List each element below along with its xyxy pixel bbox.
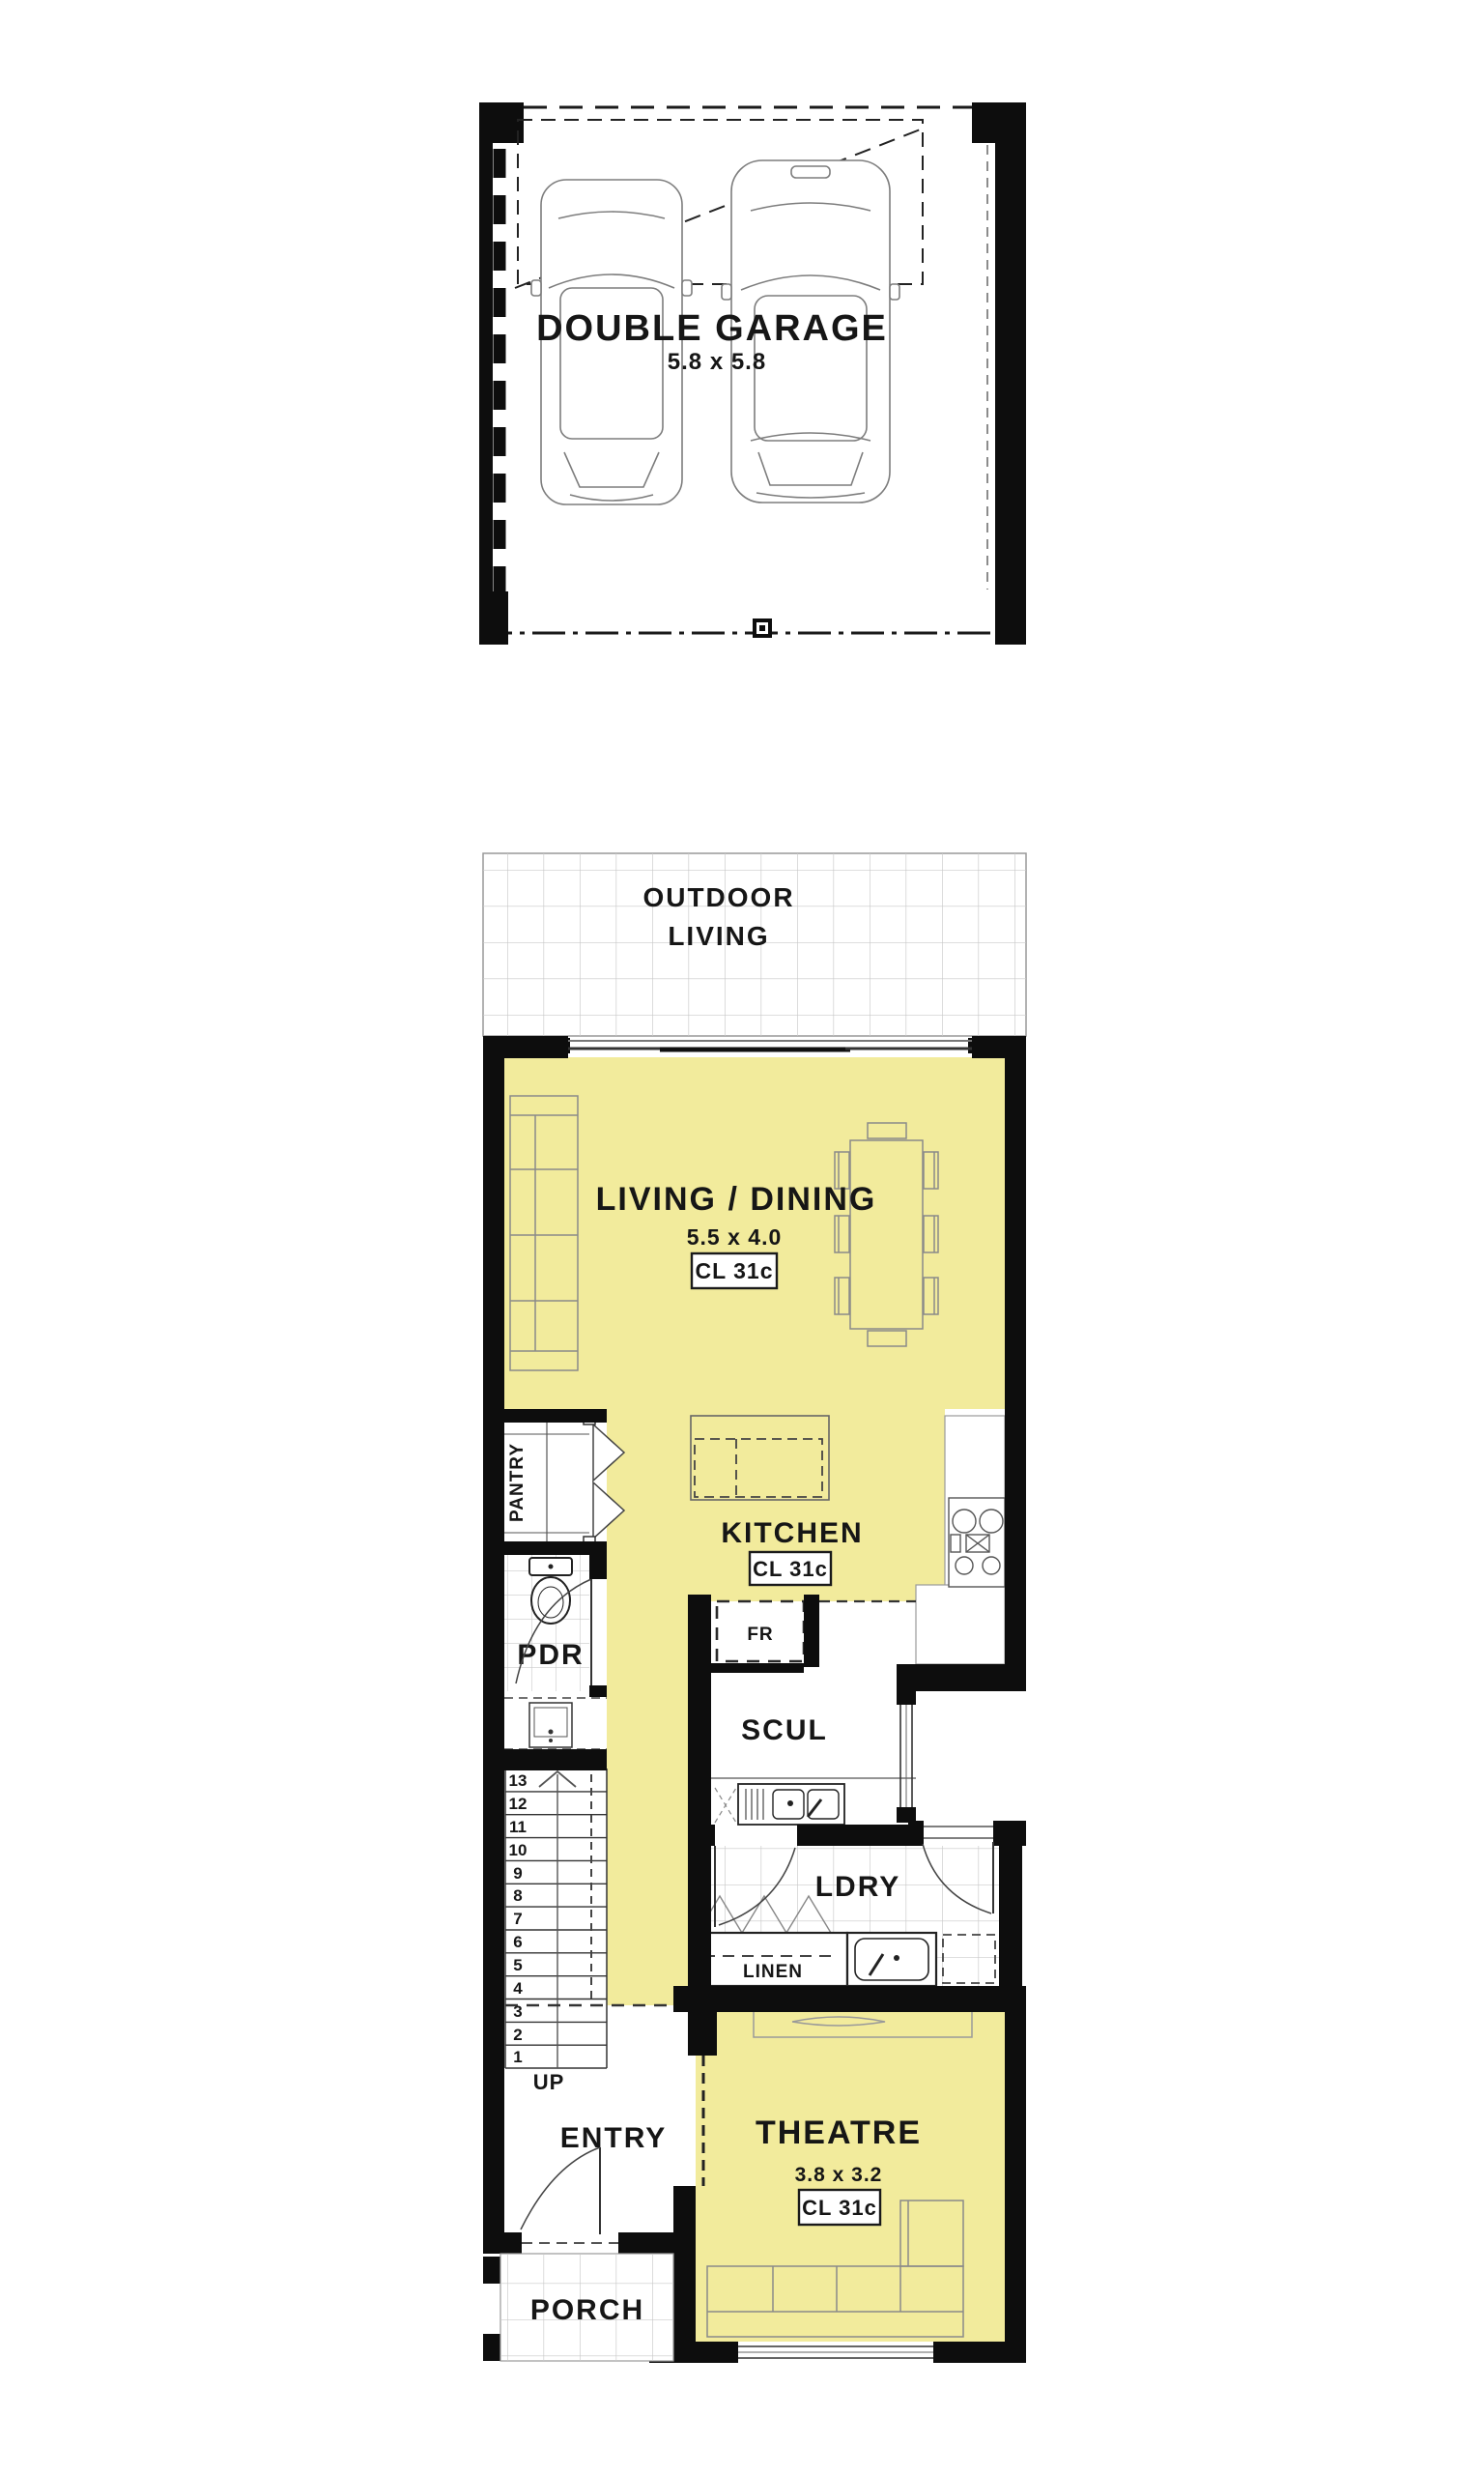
svg-text:13: 13: [509, 1771, 528, 1790]
svg-text:9: 9: [513, 1864, 522, 1883]
living-dining-label: LIVING / DINING: [596, 1181, 877, 1218]
garage-label: DOUBLE GARAGE: [536, 308, 888, 349]
svg-text:11: 11: [509, 1818, 527, 1836]
pantry-label: PANTRY: [507, 1443, 528, 1522]
stacker-door-icon: [564, 1038, 974, 1053]
linen-label: LINEN: [743, 1962, 803, 1982]
garage-left-wall: [479, 102, 493, 645]
left-exterior-wall: [483, 1036, 504, 2254]
outdoor-living-label-2: LIVING: [668, 921, 769, 951]
scul-sink-icon: [738, 1784, 844, 1825]
svg-text:5: 5: [513, 1956, 522, 1974]
garage-room: DOUBLE GARAGE 5.8 x 5.8: [479, 102, 1026, 645]
outdoor-living-room: OUTDOOR LIVING: [483, 853, 1026, 1036]
entry-door-arc: [521, 2147, 600, 2229]
powder-room: PDR: [504, 1555, 591, 1691]
pdr-top-wall: [483, 1541, 607, 1555]
scul-window-stub-top: [897, 1691, 916, 1705]
car-mirror-icon: [531, 280, 541, 296]
theatre-dims: 3.8 x 3.2: [795, 2164, 883, 2186]
pdr-right-wall-stub: [589, 1541, 607, 1579]
living-dining-dims: 5.5 x 4.0: [687, 1224, 783, 1250]
garage-dims: 5.8 x 5.8: [668, 349, 766, 375]
hall-right-wall: [688, 1595, 711, 1991]
porch-left-pier-bottom: [483, 2334, 500, 2361]
theatre-left-wall: [673, 2186, 696, 2363]
svg-text:2: 2: [513, 2026, 522, 2044]
meter-box-icon: [753, 618, 772, 638]
car-mirror-icon: [722, 284, 731, 300]
dishwasher-space: [715, 1788, 736, 1823]
svg-text:10: 10: [509, 1841, 528, 1859]
nook-bottom-wall: [483, 1749, 607, 1770]
scullery-room: SCUL: [711, 1714, 916, 1825]
entry-bottom-wall-right: [618, 2232, 673, 2254]
ldry-label: LDRY: [815, 1871, 901, 1903]
svg-text:12: 12: [509, 1795, 528, 1813]
svg-text:8: 8: [513, 1886, 522, 1905]
cooktop-icon: [949, 1498, 1005, 1587]
theatre-left-wall-stub: [688, 1986, 717, 2056]
theatre-bottom-wall-right: [933, 2342, 1005, 2363]
garage-bottom-right-pier: [995, 591, 1026, 645]
linen-cupboard: LINEN: [696, 1933, 847, 1986]
scul-label: SCUL: [741, 1714, 828, 1746]
scul-bottom-wall-left: [688, 1825, 715, 1846]
car-mirror-icon: [682, 280, 692, 296]
entry-bottom-wall-left: [483, 2232, 522, 2254]
outdoor-living-label-1: OUTDOOR: [642, 882, 794, 912]
hall-floor: [607, 1601, 688, 2005]
fridge-right-stub-wall: [804, 1595, 819, 1667]
theatre-right-wall: [1005, 1991, 1026, 2363]
garage-top-right-pier: [972, 102, 1026, 143]
svg-text:4: 4: [513, 1979, 523, 1998]
toilet-icon: [529, 1558, 572, 1624]
svg-text:6: 6: [513, 1933, 522, 1951]
porch-label: PORCH: [530, 2294, 644, 2326]
garage-bottom-left-pier: [479, 591, 508, 645]
pantry-room: PANTRY: [504, 1413, 624, 1548]
basin-icon: [529, 1703, 572, 1747]
ldry-topright-wall-right: [993, 1821, 1026, 1846]
stairs-up-label: UP: [533, 2070, 565, 2094]
entry-label: ENTRY: [560, 2122, 668, 2154]
floor-plan-page: DOUBLE GARAGE 5.8 x 5.8 OUTDOOR LIVING: [0, 0, 1484, 2474]
scul-window-stub-bottom: [897, 1807, 916, 1823]
car-mirror-icon: [890, 284, 899, 300]
laundry-trough-icon: [847, 1933, 936, 1986]
svg-text:7: 7: [513, 1910, 522, 1928]
kitchen-bench-return: [916, 1585, 1005, 1664]
living-dining-ceiling-label: CL 31c: [695, 1258, 773, 1283]
kitchen-ceiling-label: CL 31c: [753, 1557, 828, 1581]
right-step-wall: [897, 1664, 1026, 1691]
fridge-label: FR: [747, 1625, 773, 1645]
scul-bottom-wall-right: [797, 1825, 916, 1846]
theatre-ceiling-label: CL 31c: [802, 2196, 877, 2220]
svg-text:1: 1: [513, 2048, 522, 2066]
living-top-wall-left: [483, 1036, 568, 1058]
laundry-room: LDRY LINEN: [692, 1846, 999, 1986]
staircase: 13 12 11 10 9 8 7 6 5 4 3 2 1 UP: [505, 1769, 607, 2094]
theatre-window-icon: [738, 2346, 933, 2358]
theatre-top-wall: [673, 1986, 1026, 2012]
fridge-bottom-wall: [711, 1663, 804, 1673]
vanity-nook: [504, 1698, 607, 1749]
porch-left-pier-top: [483, 2257, 500, 2284]
pdr-label: PDR: [517, 1639, 584, 1671]
pantry-top-wall: [483, 1409, 607, 1423]
kitchen-label: KITCHEN: [721, 1517, 863, 1549]
theatre-label: THEATRE: [756, 2114, 922, 2151]
floor-plan-canvas: DOUBLE GARAGE 5.8 x 5.8 OUTDOOR LIVING: [0, 0, 1484, 2474]
pdr-door-hinge-stub: [589, 1685, 607, 1697]
garage-right-wall: [995, 102, 1026, 645]
scul-window-icon: [900, 1705, 912, 1807]
ldry-right-wall: [999, 1844, 1022, 1991]
porch-area: PORCH: [500, 2254, 673, 2361]
right-exterior-wall-upper: [1005, 1036, 1026, 1691]
